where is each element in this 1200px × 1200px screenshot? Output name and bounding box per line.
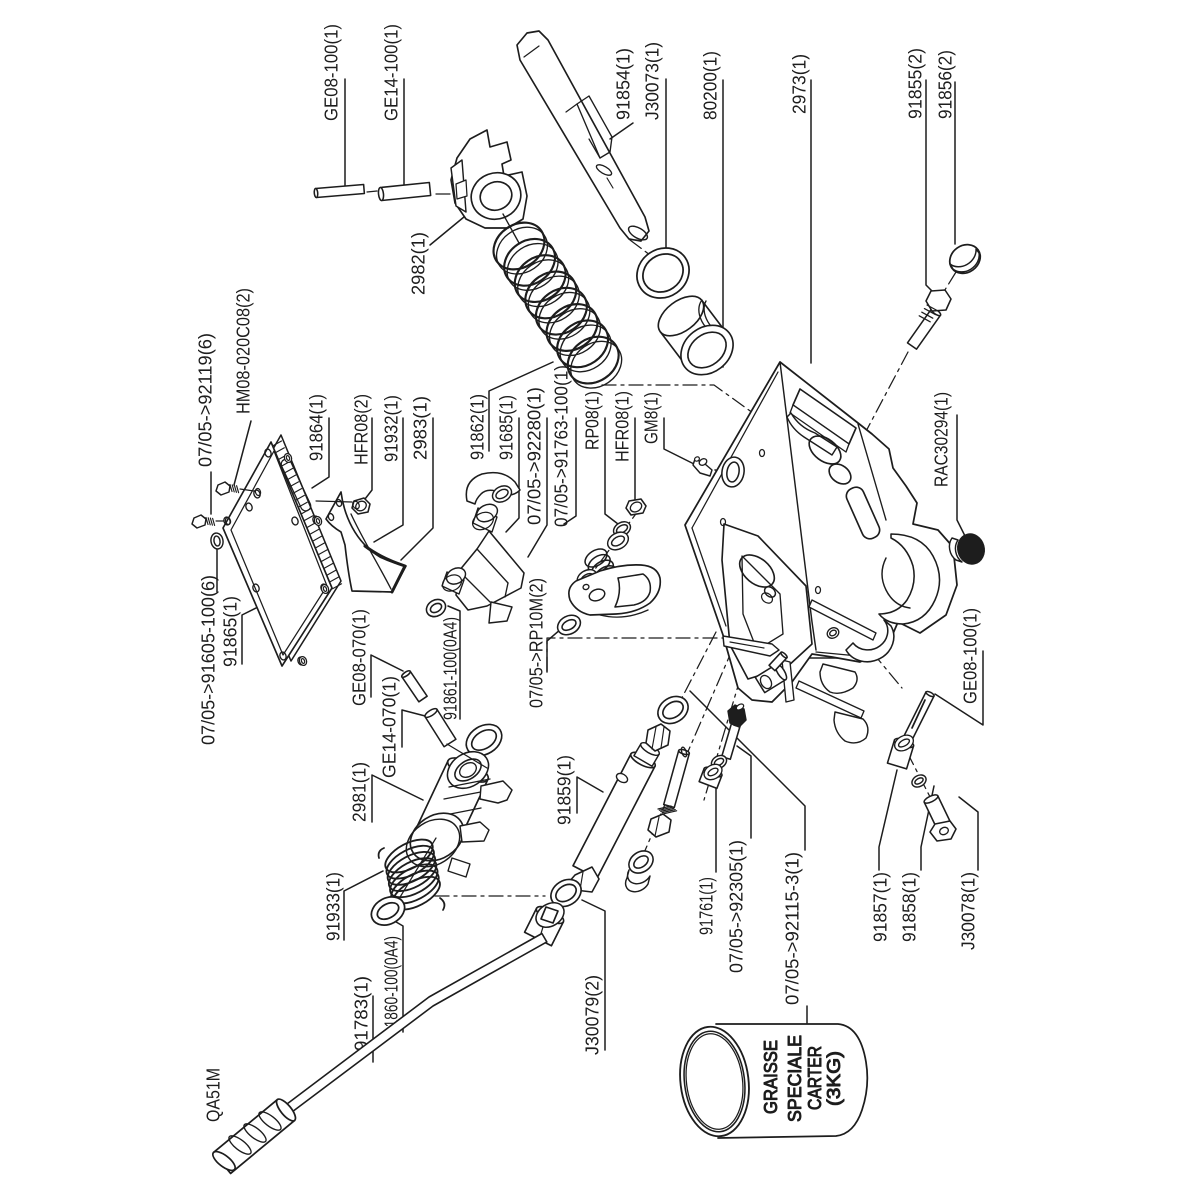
svg-text:91865(1): 91865(1) xyxy=(220,596,241,667)
svg-text:GE08-070(1): GE08-070(1) xyxy=(349,609,370,706)
svg-text:GRAISSE: GRAISSE xyxy=(760,1040,781,1114)
svg-text:J30079(2): J30079(2) xyxy=(582,975,603,1055)
svg-text:HFR08(1): HFR08(1) xyxy=(612,391,633,462)
svg-text:GE08-100(1): GE08-100(1) xyxy=(321,24,342,121)
svg-text:91862(1): 91862(1) xyxy=(467,394,488,460)
svg-text:07/05->92115-3(1): 07/05->92115-3(1) xyxy=(782,852,803,1005)
svg-text:91761(1): 91761(1) xyxy=(696,877,717,935)
svg-text:QA51M: QA51M xyxy=(203,1068,224,1122)
svg-text:J30078(1): J30078(1) xyxy=(958,872,979,950)
svg-text:07/05->RP10M(2): 07/05->RP10M(2) xyxy=(526,578,547,708)
svg-text:2982(1): 2982(1) xyxy=(408,232,429,295)
svg-text:GE08-100(1): GE08-100(1) xyxy=(960,608,981,704)
svg-text:HM08-020C08(2): HM08-020C08(2) xyxy=(233,288,254,414)
svg-text:91856(2): 91856(2) xyxy=(935,50,956,119)
svg-text:91857(1): 91857(1) xyxy=(870,872,891,942)
svg-text:07/05->92280(1): 07/05->92280(1) xyxy=(524,387,545,525)
svg-text:07/05->91605-100(6): 07/05->91605-100(6) xyxy=(198,575,219,745)
svg-text:07/05->92305(1): 07/05->92305(1) xyxy=(726,840,747,973)
svg-text:2981(1): 2981(1) xyxy=(349,762,370,822)
svg-text:91859(1): 91859(1) xyxy=(554,755,575,825)
svg-text:(3KG): (3KG) xyxy=(823,1051,844,1106)
svg-text:91933(1): 91933(1) xyxy=(323,872,344,941)
svg-text:07/05->91763-100(1): 07/05->91763-100(1) xyxy=(551,365,572,527)
svg-text:91864(1): 91864(1) xyxy=(306,394,327,461)
svg-text:91854(1): 91854(1) xyxy=(613,48,634,120)
svg-text:80200(1): 80200(1) xyxy=(700,51,721,120)
svg-text:2983(1): 2983(1) xyxy=(410,396,431,460)
svg-text:2973(1): 2973(1) xyxy=(789,54,810,114)
svg-text:GM8(1): GM8(1) xyxy=(641,392,662,444)
svg-text:CARTER: CARTER xyxy=(804,1046,825,1110)
svg-text:HFR08(2): HFR08(2) xyxy=(351,394,372,465)
svg-text:91855(2): 91855(2) xyxy=(905,48,926,119)
svg-text:RAC30294(1): RAC30294(1) xyxy=(931,392,952,487)
svg-text:91861-100(0A4): 91861-100(0A4) xyxy=(440,617,461,720)
svg-text:91858(1): 91858(1) xyxy=(899,872,920,942)
svg-text:91783(1): 91783(1) xyxy=(351,976,372,1051)
svg-text:GE14-070(1): GE14-070(1) xyxy=(379,676,400,778)
svg-text:91932(1): 91932(1) xyxy=(381,395,402,462)
svg-text:J30073(1): J30073(1) xyxy=(642,42,663,120)
svg-text:91685(1): 91685(1) xyxy=(496,395,517,460)
svg-text:GE14-100(1): GE14-100(1) xyxy=(381,24,402,121)
svg-text:RP08(1): RP08(1) xyxy=(582,391,603,450)
svg-text:07/05->92119(6): 07/05->92119(6) xyxy=(195,333,216,467)
svg-text:SPECIALE: SPECIALE xyxy=(784,1035,805,1122)
